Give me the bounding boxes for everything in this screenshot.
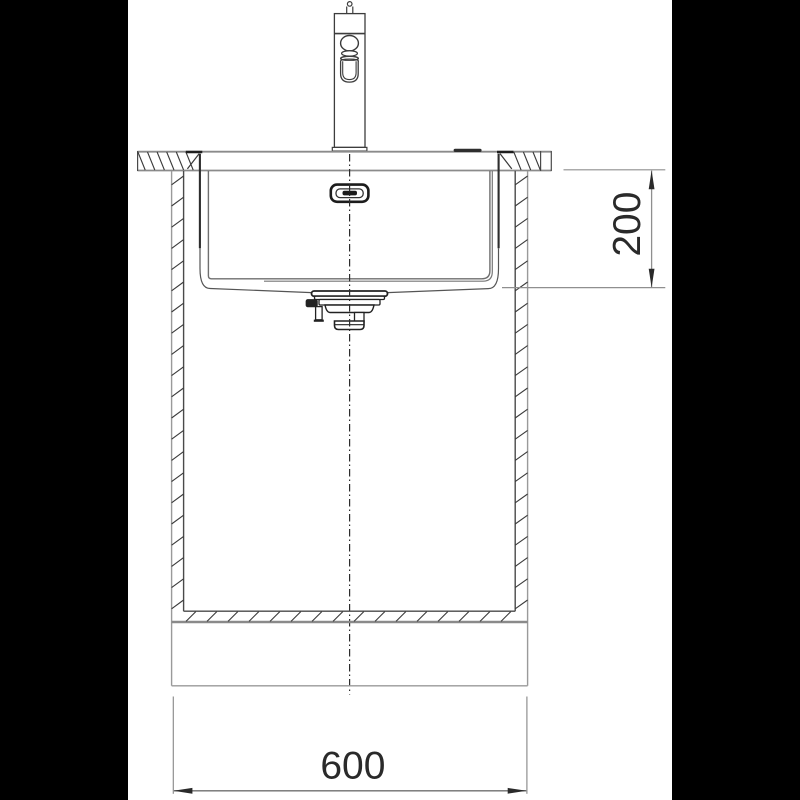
svg-text:600: 600 — [320, 745, 385, 788]
svg-text:200: 200 — [606, 192, 649, 257]
